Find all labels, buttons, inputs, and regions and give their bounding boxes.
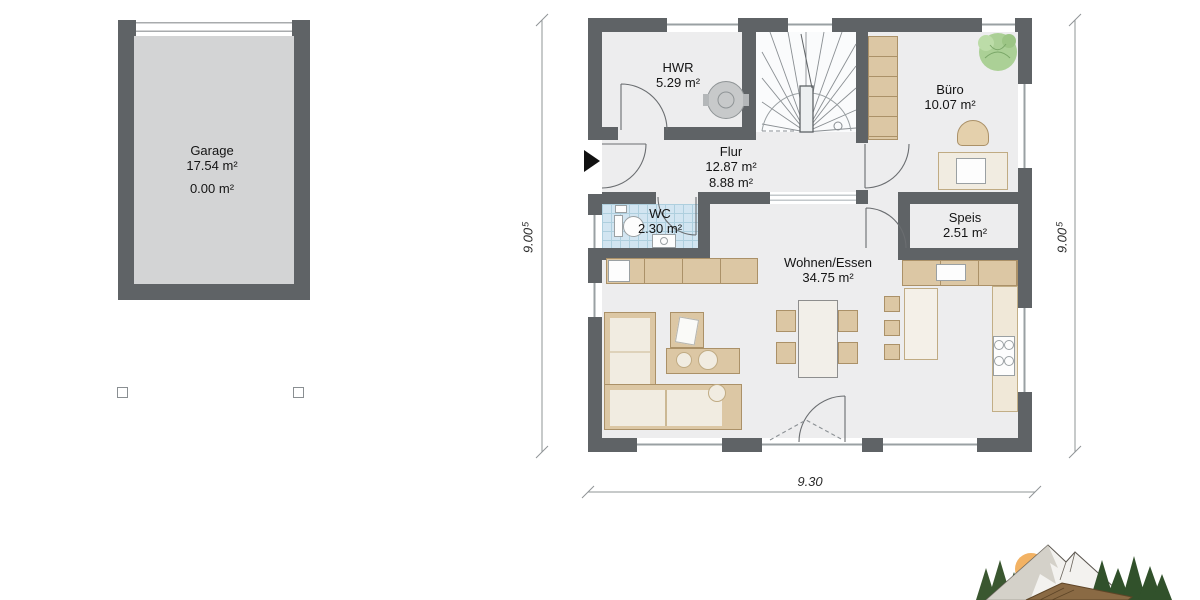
dining-chair — [838, 342, 858, 364]
room-label-speis: Speis 2.51 m² — [915, 210, 1015, 241]
dining-table — [798, 300, 838, 378]
wall-corner — [856, 190, 868, 204]
wall-speis-bottom — [898, 248, 1018, 260]
window-top-buero — [982, 18, 1015, 32]
room-label-buero: Büro 10.07 m² — [890, 82, 1010, 113]
logo-sun — [1015, 553, 1047, 585]
logo-mountain — [986, 545, 1128, 600]
wall-hwr-bottom — [664, 127, 756, 140]
boundary-marker — [117, 387, 128, 398]
terrace-door-opening — [762, 438, 862, 452]
dimension-right-label: 9.005 — [1055, 208, 1070, 268]
room-label-garage: Garage 17.54 m² 0.00 m² — [152, 143, 272, 196]
dining-chair — [838, 310, 858, 332]
bar-stool — [884, 320, 900, 336]
window-bottom-living — [637, 438, 722, 452]
dining-chair — [776, 310, 796, 332]
sideboard-cabinet — [608, 260, 630, 282]
kitchen-island — [904, 288, 938, 360]
table-plate — [698, 350, 718, 370]
room-label-wc: WC 2.30 m² — [616, 206, 704, 237]
entrance-opening — [588, 140, 602, 194]
desk-pad — [956, 158, 986, 184]
wall-stairs-buero — [856, 32, 868, 143]
room-label-wohnen-essen: Wohnen/Essen 34.75 m² — [758, 255, 898, 286]
wall-hwr-stairs — [742, 32, 756, 140]
window-top-hwr — [667, 18, 738, 32]
window-left-wc — [588, 215, 602, 248]
dimension-left-label: 9.005 — [521, 208, 536, 268]
logo-cabin-roof — [1026, 583, 1132, 600]
floor-plan: Garage 17.54 m² 0.00 m² HWR 5.29 m² Flur… — [0, 0, 1200, 600]
window-right-kitchen — [1018, 308, 1032, 392]
garage-door — [136, 20, 292, 36]
desk-chair — [957, 120, 989, 146]
window-top-stairs — [788, 18, 832, 32]
window-right-buero — [1018, 84, 1032, 168]
logo-trees-right — [1090, 556, 1172, 600]
bar-stool — [884, 296, 900, 312]
kitchen-sink — [936, 264, 966, 281]
sofa-pillow — [708, 384, 726, 402]
opening-flur-living — [770, 192, 856, 204]
sofa-cushions — [610, 318, 650, 386]
brand-logo — [976, 545, 1172, 600]
stove — [993, 336, 1015, 376]
table-bowl — [676, 352, 692, 368]
window-bottom-kitchen — [883, 438, 977, 452]
room-label-hwr: HWR 5.29 m² — [618, 60, 738, 91]
dining-chair — [776, 342, 796, 364]
boundary-marker — [293, 387, 304, 398]
bar-stool — [884, 344, 900, 360]
dimension-bottom-label: 9.30 — [780, 474, 840, 489]
logo-trees-left — [976, 560, 1038, 600]
wall-flur-wc — [602, 192, 656, 204]
wall-buero-speis — [900, 192, 1018, 204]
sofa-cushions — [610, 390, 722, 426]
room-label-flur: Flur 12.87 m² 8.88 m² — [671, 144, 791, 190]
window-left-living — [588, 283, 602, 317]
wall-hwr-bottom — [602, 127, 618, 140]
